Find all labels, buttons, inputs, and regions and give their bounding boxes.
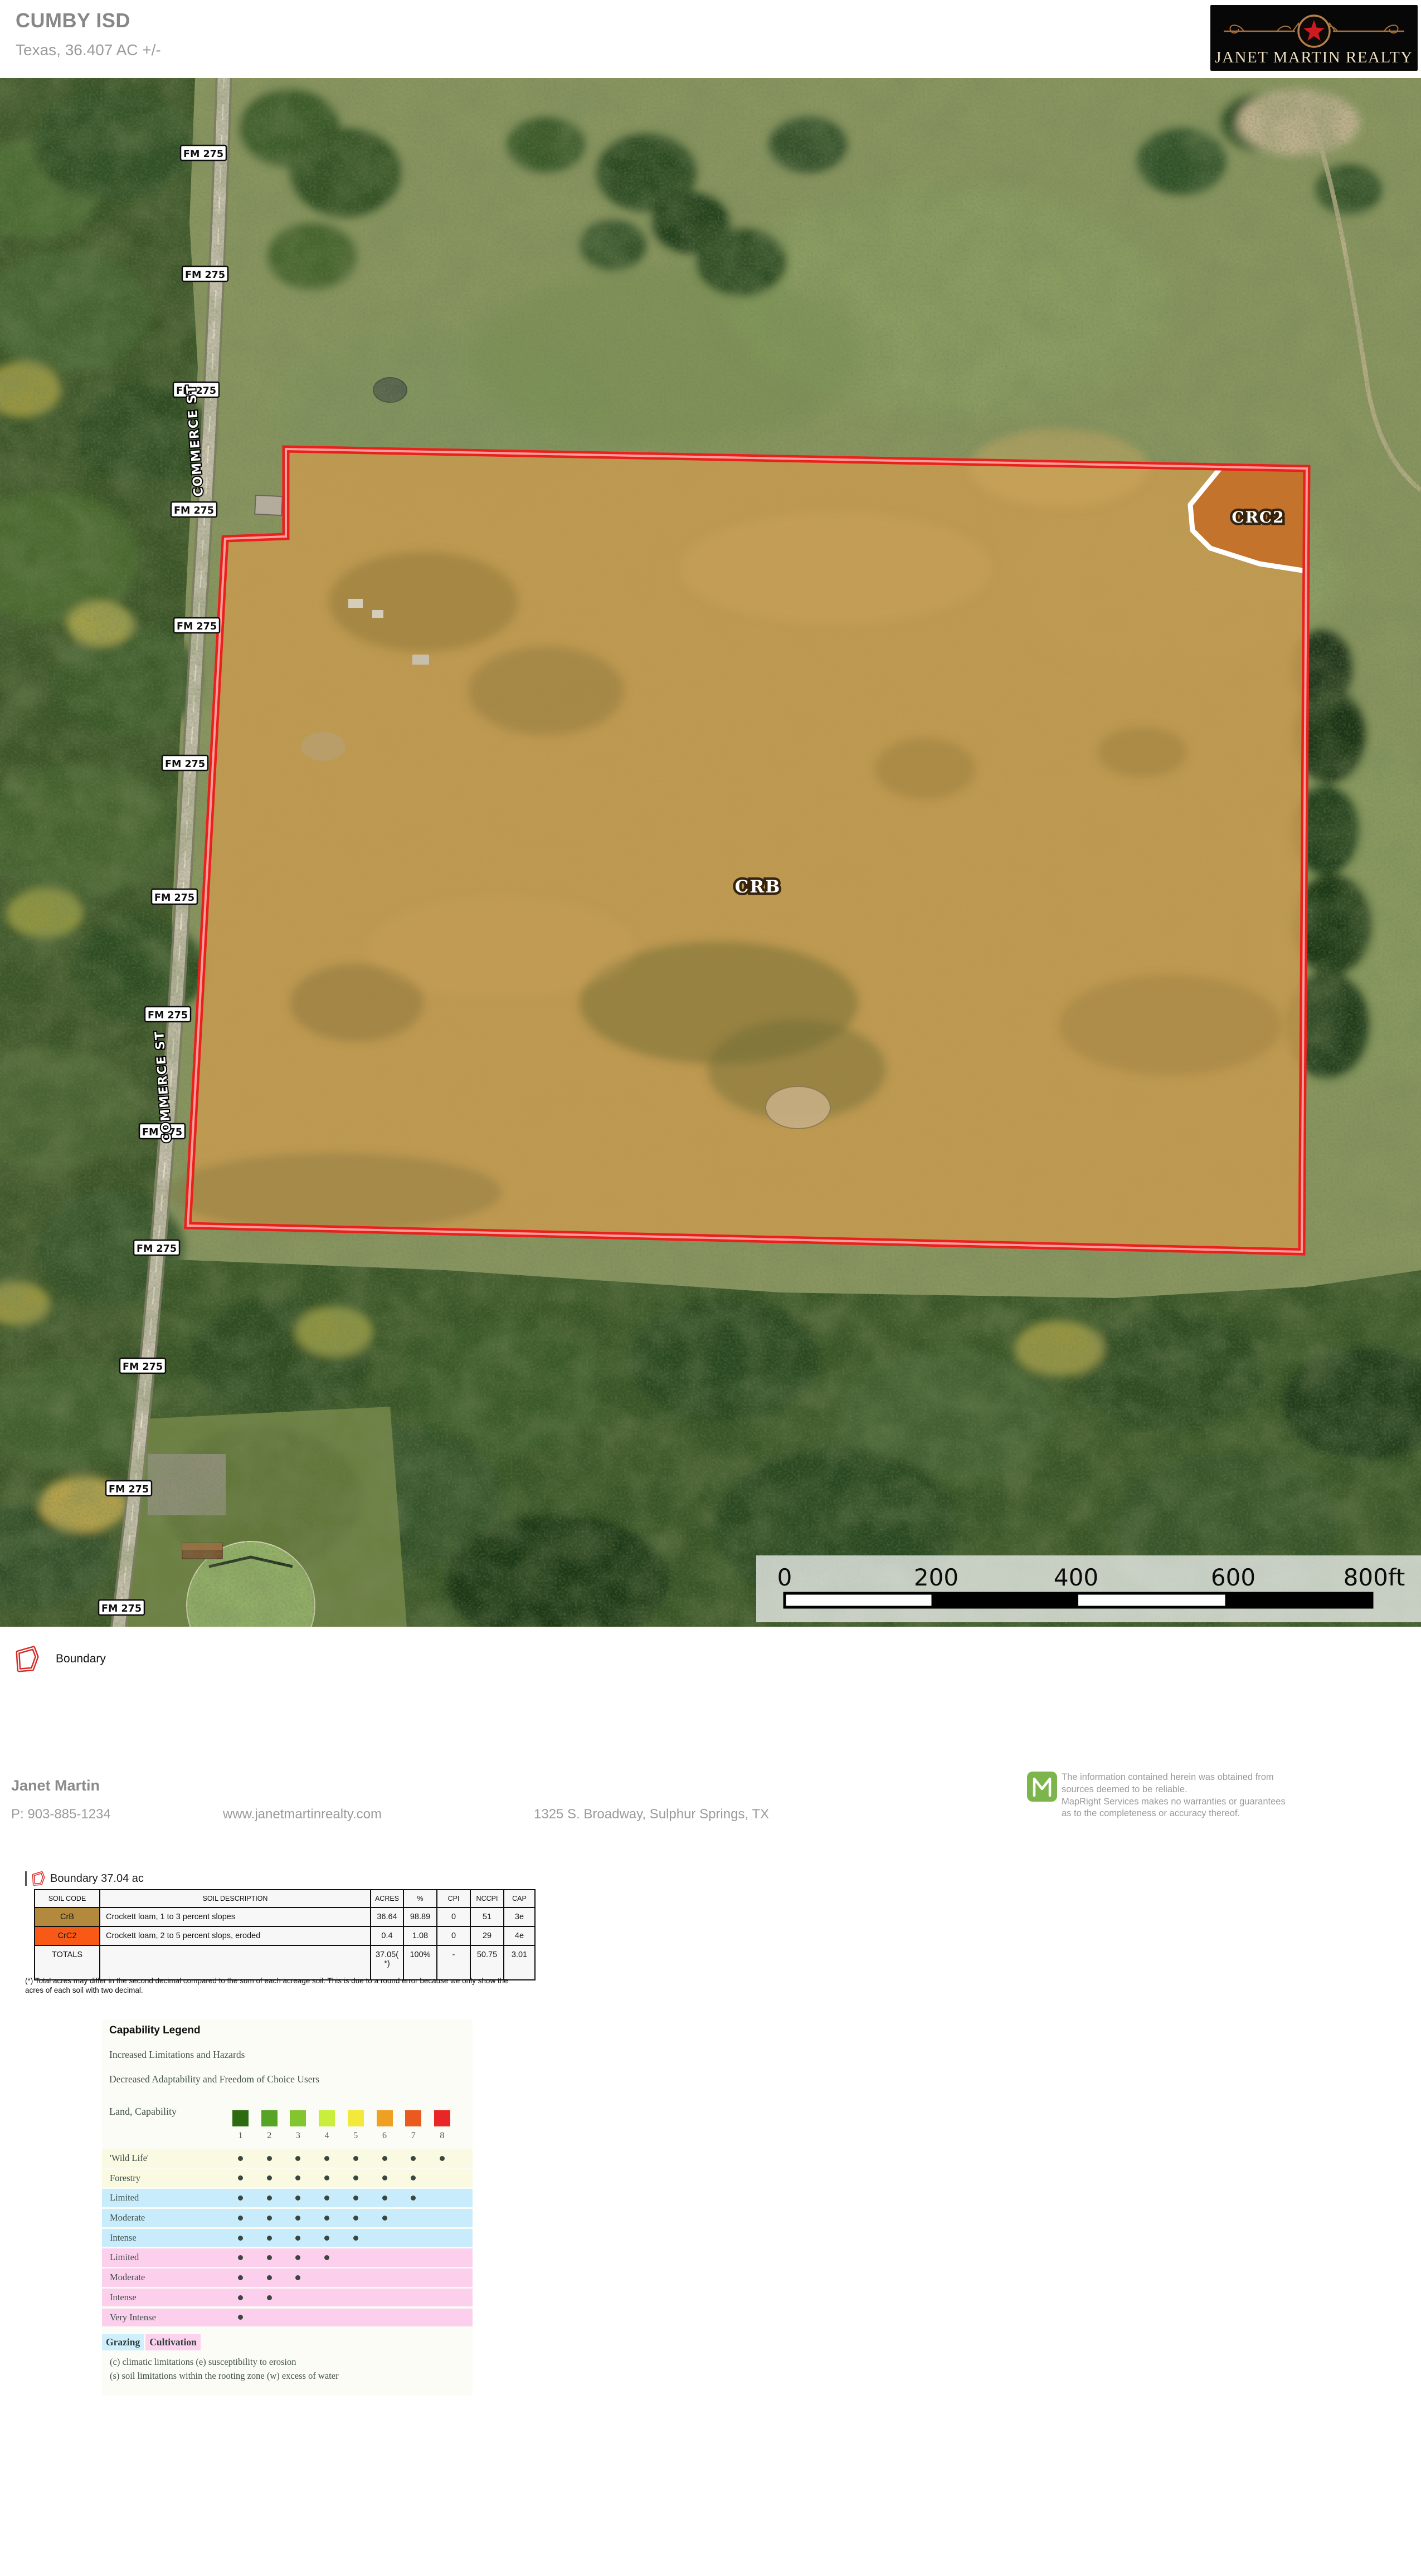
capability-dot	[267, 2175, 272, 2180]
table-row: CrB Crockett loam, 1 to 3 percent slopes…	[35, 1907, 535, 1926]
capability-legend-title: Capability Legend	[109, 2024, 201, 2037]
column-header: NCCPI	[470, 1890, 504, 1907]
totals-label: TOTALS	[35, 1945, 100, 1980]
capability-class-number: 7	[405, 2131, 421, 2141]
soil-pct: 98.89	[403, 1907, 437, 1926]
road-label-text: FM 275	[123, 1362, 163, 1373]
logo-wordmark: JANET MARTIN REALTY	[1215, 48, 1413, 66]
capability-dot	[411, 2156, 416, 2161]
capability-row-label: Moderate	[110, 2212, 145, 2223]
soil-code-cell: CrB	[35, 1907, 100, 1926]
capability-subtitle-2: Decreased Adaptability and Freedom of Ch…	[109, 2074, 319, 2085]
capability-dot	[295, 2175, 300, 2180]
road-label-fm275: FM 275	[174, 618, 220, 633]
capability-row-label: 'Wild Life'	[110, 2153, 149, 2164]
road-label-text: FM 275	[174, 505, 214, 516]
capability-dot	[238, 2175, 243, 2180]
parcel-pond	[766, 1086, 830, 1129]
scale-tick: 0	[777, 1564, 792, 1591]
scale-tick: 800ft	[1344, 1564, 1405, 1591]
table-row: CrC2 Crockett loam, 2 to 5 percent slops…	[35, 1926, 535, 1945]
small-structure	[412, 655, 429, 665]
road-label-text: FM 275	[154, 892, 194, 904]
capability-class-swatch	[377, 2110, 393, 2126]
road-label-fm275: FM 275	[171, 502, 217, 517]
capability-dot	[238, 2295, 243, 2300]
realty-logo-art: JANET MARTIN REALTY	[1210, 5, 1418, 71]
road-label-fm275: FM 275	[145, 1007, 191, 1022]
column-header: SOIL DESCRIPTION	[100, 1890, 371, 1907]
totals-cpi: -	[437, 1945, 470, 1980]
totals-acres: 37.05( *)	[371, 1945, 403, 1980]
capability-dot	[353, 2175, 358, 2180]
road-label-text: FM 275	[177, 621, 217, 632]
soil-cap: 4e	[504, 1926, 535, 1945]
capability-row-label: Moderate	[110, 2272, 145, 2283]
road-label-fm275: FM 275	[106, 1481, 152, 1496]
capability-class-swatch	[319, 2110, 335, 2126]
capability-class-swatch	[290, 2110, 306, 2126]
road-label-fm275: FM 275	[182, 266, 228, 281]
totals-cap: 3.01	[504, 1945, 535, 1980]
road-label-text: FM 275	[165, 759, 205, 770]
capability-class-scale: 12345678	[232, 2110, 472, 2145]
capability-row: Moderate	[102, 2209, 473, 2227]
capability-class-swatch	[434, 2110, 450, 2126]
capability-class-swatch	[405, 2110, 421, 2126]
capability-dot	[295, 2255, 300, 2260]
capability-class-swatch	[348, 2110, 364, 2126]
soil-table-footnote: (*) Total acres may differ in the second…	[25, 1977, 520, 1996]
capability-dot	[324, 2196, 329, 2201]
totals-pct: 100%	[403, 1945, 437, 1980]
agent-name: Janet Martin	[11, 1777, 100, 1794]
capability-dot	[238, 2236, 243, 2241]
capability-row-label: Forestry	[110, 2173, 140, 2184]
capability-row-label: Limited	[110, 2192, 139, 2203]
soil-description: Crockett loam, 1 to 3 percent slopes	[100, 1907, 371, 1926]
capability-dot	[382, 2175, 387, 2180]
road-label-text: FM 275	[185, 270, 225, 281]
capability-dot	[324, 2236, 329, 2241]
road-label-text: FM 275	[109, 1484, 149, 1495]
capability-dot	[267, 2275, 272, 2280]
soil-nccpi: 51	[470, 1907, 504, 1926]
road-label-text: FM 275	[183, 149, 223, 160]
capability-row-label: Very Intense	[110, 2312, 156, 2323]
disclaimer: The information contained herein was obt…	[1027, 1772, 1421, 1820]
capability-dot	[440, 2156, 445, 2161]
boundary-legend-icon	[13, 1645, 39, 1676]
soil-acres: 0.4	[371, 1926, 403, 1945]
road-label-fm275: FM 275	[120, 1358, 166, 1373]
capability-dot	[324, 2216, 329, 2221]
scale-tick: 200	[914, 1564, 958, 1591]
capability-dot	[267, 2196, 272, 2201]
soil-boundary-title: Boundary 37.04 ac	[50, 1872, 144, 1885]
capability-row: Forestry	[102, 2169, 473, 2188]
agent-address: 1325 S. Broadway, Sulphur Springs, TX	[534, 1807, 769, 1822]
capability-dot	[238, 2315, 243, 2320]
road-label-text: FM 275	[137, 1243, 177, 1255]
capability-class-number: 8	[434, 2131, 450, 2141]
road-label-fm275: FM 275	[162, 755, 208, 770]
soil-cpi: 0	[437, 1926, 470, 1945]
capability-dot	[267, 2255, 272, 2260]
capability-row-label: Intense	[110, 2292, 137, 2303]
column-header: SOIL CODE	[35, 1890, 100, 1907]
soil-area-label: CRC2	[1232, 508, 1284, 526]
land-capability-label: Land, Capability	[109, 2106, 177, 2118]
soil-nccpi: 29	[470, 1926, 504, 1945]
boundary-icon	[31, 1871, 45, 1886]
capability-class-number: 3	[290, 2131, 306, 2141]
capability-row: Moderate	[102, 2268, 473, 2287]
column-header: %	[403, 1890, 437, 1907]
disclaimer-text: The information contained herein was obt…	[1062, 1772, 1421, 1820]
capability-row-label: Limited	[110, 2252, 139, 2263]
road-label-fm275: FM 275	[99, 1600, 144, 1615]
soil-description: Crockett loam, 2 to 5 percent slops, ero…	[100, 1926, 371, 1945]
totals-nccpi: 50.75	[470, 1945, 504, 1980]
soil-pct: 1.08	[403, 1926, 437, 1945]
scale-tick: 600	[1211, 1564, 1255, 1591]
capability-dot	[295, 2156, 300, 2161]
capability-dot	[295, 2275, 300, 2280]
capability-group-labels: Grazing Cultivation	[102, 2334, 202, 2350]
capability-row: Intense	[102, 2229, 473, 2247]
soil-code-cell: CrC2	[35, 1926, 100, 1945]
capability-dot	[267, 2295, 272, 2300]
capability-dot	[353, 2236, 358, 2241]
road-label-fm275: FM 275	[134, 1240, 179, 1255]
capability-class-number: 1	[232, 2131, 249, 2141]
capability-dot	[382, 2156, 387, 2161]
capability-dot	[353, 2196, 358, 2201]
agent-website[interactable]: www.janetmartinrealty.com	[223, 1807, 382, 1822]
page-subtitle: Texas, 36.407 AC +/-	[16, 41, 161, 59]
capability-class-swatch	[232, 2110, 249, 2126]
aerial-map: FM 275FM 275FM 275FM 275FM 275FM 275FM 2…	[0, 78, 1421, 1627]
cultivation-label: Cultivation	[145, 2334, 201, 2350]
capability-dot	[267, 2236, 272, 2241]
soil-acres: 36.64	[371, 1907, 403, 1926]
agent-phone: P: 903-885-1234	[11, 1807, 111, 1822]
column-header: CAP	[504, 1890, 535, 1907]
capability-dot	[382, 2216, 387, 2221]
capability-dot	[238, 2216, 243, 2221]
divider	[25, 1871, 27, 1886]
capability-dot	[295, 2236, 300, 2241]
capability-dot	[324, 2175, 329, 2180]
scale-tick: 400	[1054, 1564, 1098, 1591]
capability-dot	[382, 2196, 387, 2201]
road-label-fm275: FM 275	[152, 889, 197, 904]
capability-dot	[267, 2156, 272, 2161]
capability-class-number: 4	[319, 2131, 335, 2141]
boundary-legend-label: Boundary	[56, 1652, 106, 1666]
capability-row: Limited	[102, 2248, 473, 2267]
capability-dot	[411, 2196, 416, 2201]
capability-class-number: 6	[377, 2131, 393, 2141]
soil-report-header: Boundary 37.04 ac	[25, 1871, 144, 1886]
small-structure	[348, 599, 363, 608]
road-label-text: FM 275	[101, 1603, 142, 1614]
bare-patch	[301, 732, 345, 761]
capability-dot	[353, 2156, 358, 2161]
farmstead-building	[255, 495, 283, 515]
soil-table: SOIL CODE SOIL DESCRIPTION ACRES % CPI N…	[34, 1889, 536, 1980]
capability-dot	[411, 2175, 416, 2180]
capability-dot	[267, 2216, 272, 2221]
capability-rows: 'Wild Life'ForestryLimitedModerateIntens…	[102, 2149, 473, 2328]
capability-row: Intense	[102, 2289, 473, 2307]
capability-dot	[238, 2156, 243, 2161]
column-header: CPI	[437, 1890, 470, 1907]
grazing-label: Grazing	[102, 2334, 144, 2350]
column-header: ACRES	[371, 1890, 403, 1907]
janet-martin-realty-logo: JANET MARTIN REALTY	[1210, 5, 1418, 71]
totals-description	[100, 1945, 371, 1980]
soil-cpi: 0	[437, 1907, 470, 1926]
capability-class-swatch	[261, 2110, 278, 2126]
page-title: CUMBY ISD	[16, 9, 130, 32]
capability-dot	[238, 2255, 243, 2260]
scale-bar: 0 200 400 600 800ft	[756, 1555, 1421, 1622]
capability-subtitle-1: Increased Limitations and Hazards	[109, 2049, 245, 2061]
mapright-logo-icon	[1027, 1772, 1057, 1802]
road-label-fm275: FM 275	[181, 145, 226, 160]
capability-dot	[295, 2196, 300, 2201]
soil-cap: 3e	[504, 1907, 535, 1926]
capability-dot	[353, 2216, 358, 2221]
capability-dot	[324, 2255, 329, 2260]
soil-area-label: CRB	[735, 877, 781, 897]
capability-row-label: Intense	[110, 2232, 137, 2243]
capability-footnote-1: (c) climatic limitations (e) susceptibil…	[110, 2357, 296, 2368]
capability-legend-panel: Capability Legend Increased Limitations …	[102, 2019, 473, 2396]
capability-row: Limited	[102, 2189, 473, 2207]
capability-dot	[238, 2275, 243, 2280]
capability-footnote-2: (s) soil limitations within the rooting …	[110, 2370, 339, 2382]
capability-dot	[295, 2216, 300, 2221]
soil-table-header-row: SOIL CODE SOIL DESCRIPTION ACRES % CPI N…	[35, 1890, 535, 1907]
capability-row: Very Intense	[102, 2309, 473, 2327]
capability-class-number: 5	[348, 2131, 364, 2141]
totals-row: TOTALS 37.05( *) 100% - 50.75 3.01	[35, 1945, 535, 1980]
capability-dot	[238, 2196, 243, 2201]
small-structure	[372, 610, 383, 618]
capability-class-number: 2	[261, 2131, 278, 2141]
capability-row: 'Wild Life'	[102, 2149, 473, 2168]
capability-dot	[324, 2156, 329, 2161]
road-label-text: FM 275	[148, 1010, 188, 1021]
